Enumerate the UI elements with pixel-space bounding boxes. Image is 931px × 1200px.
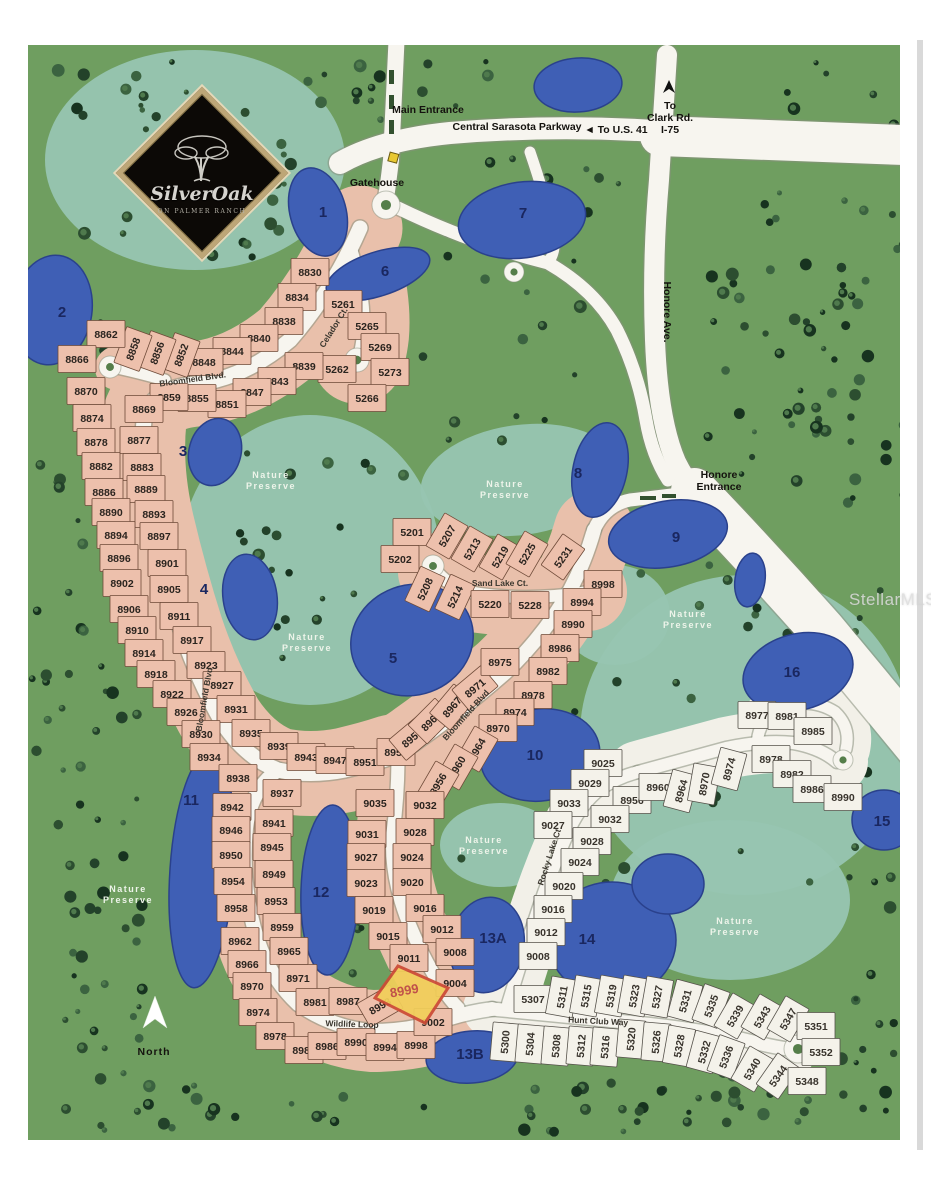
lot-8866: 8866 bbox=[58, 346, 96, 373]
lot-8862: 8862 bbox=[87, 321, 125, 348]
lot-9008: 9008 bbox=[519, 943, 557, 970]
tree-highlight bbox=[145, 1101, 150, 1106]
tree bbox=[244, 450, 250, 456]
lot-number: 8893 bbox=[142, 509, 166, 521]
tree-highlight bbox=[324, 459, 330, 465]
tree-highlight bbox=[821, 346, 824, 349]
oak-tree-icon bbox=[170, 131, 234, 183]
lot-8954: 8954 bbox=[214, 868, 252, 895]
lot-8965: 8965 bbox=[270, 938, 308, 965]
tree-highlight bbox=[806, 326, 812, 332]
lot-number: 8949 bbox=[262, 869, 286, 881]
lot-number: 8906 bbox=[117, 604, 141, 616]
tree-highlight bbox=[102, 1128, 105, 1131]
lot-8975: 8975 bbox=[481, 649, 519, 676]
tree bbox=[518, 1123, 530, 1135]
tree bbox=[634, 1118, 641, 1125]
gatehouse-icon bbox=[388, 152, 399, 163]
lot-number: 8901 bbox=[155, 558, 179, 570]
tree bbox=[240, 538, 248, 546]
tract-number-1: 1 bbox=[319, 204, 327, 221]
cul-de-sac-island bbox=[839, 756, 846, 763]
tree-highlight bbox=[244, 241, 249, 246]
lot-number: 5320 bbox=[625, 1027, 639, 1051]
tree-highlight bbox=[900, 242, 904, 246]
tree bbox=[132, 914, 145, 927]
tree-highlight bbox=[71, 909, 76, 914]
lot-8982: 8982 bbox=[529, 658, 567, 685]
tree-highlight bbox=[121, 1071, 124, 1074]
lot-8874: 8874 bbox=[73, 405, 111, 432]
map-label: Clark Rd. bbox=[647, 112, 693, 124]
lot-5304: 5304 bbox=[515, 1024, 545, 1064]
lot-number: 8848 bbox=[192, 357, 216, 369]
lot-number: 9015 bbox=[376, 931, 400, 943]
lot-number: 8986 bbox=[315, 1041, 339, 1053]
map-label: Central Sarasota Parkway bbox=[453, 121, 582, 133]
tree-highlight bbox=[621, 1129, 624, 1132]
lot-9023: 9023 bbox=[347, 870, 385, 897]
lot-number: 8878 bbox=[84, 437, 108, 449]
tree bbox=[158, 1118, 170, 1130]
tree bbox=[721, 366, 730, 375]
tree bbox=[743, 622, 753, 632]
cul-de-sac-island bbox=[429, 562, 437, 570]
tree bbox=[800, 258, 812, 270]
tree-highlight bbox=[145, 1082, 151, 1088]
lot-number: 8970 bbox=[486, 723, 510, 735]
nature-preserve-line1: Nature bbox=[288, 632, 326, 642]
tree bbox=[374, 70, 386, 82]
tree-highlight bbox=[350, 970, 354, 974]
lot-number: 8975 bbox=[488, 657, 512, 669]
tree bbox=[76, 950, 88, 962]
lot-number: 9016 bbox=[413, 903, 437, 915]
road bbox=[660, 136, 931, 146]
tree bbox=[315, 96, 327, 108]
tree bbox=[849, 389, 861, 401]
tree bbox=[518, 334, 529, 345]
lot-number: 8990 bbox=[344, 1037, 368, 1049]
tree-highlight bbox=[369, 85, 373, 89]
lot-8971: 8971 bbox=[279, 965, 317, 992]
tract-number-5: 5 bbox=[389, 650, 397, 667]
lot-8941: 8941 bbox=[255, 810, 293, 837]
tree-highlight bbox=[795, 405, 801, 411]
tree-highlight bbox=[59, 706, 62, 709]
scan-edge-artifact bbox=[917, 40, 923, 1150]
lot-number: 8870 bbox=[74, 386, 98, 398]
tree bbox=[899, 491, 907, 499]
lake bbox=[632, 854, 704, 914]
lot-number: 8896 bbox=[107, 553, 131, 565]
lot-number: 8917 bbox=[180, 635, 204, 647]
lot-8953: 8953 bbox=[257, 888, 295, 915]
tract-number-10: 10 bbox=[527, 747, 544, 764]
lot-number: 8934 bbox=[197, 752, 221, 764]
community-logo-content: SilverOak ON PALMER RANCH bbox=[146, 117, 258, 229]
tree-highlight bbox=[61, 768, 64, 771]
tree bbox=[54, 820, 64, 830]
tree-highlight bbox=[619, 1106, 623, 1110]
lot-number: 8990 bbox=[831, 792, 855, 804]
lot-5316: 5316 bbox=[590, 1027, 620, 1067]
tract-number-14: 14 bbox=[579, 931, 596, 948]
map-label: Entrance bbox=[697, 481, 742, 493]
lot-5351: 5351 bbox=[797, 1013, 835, 1040]
map-label: I-75 bbox=[661, 124, 679, 136]
tree bbox=[122, 924, 130, 932]
tree bbox=[890, 1019, 898, 1027]
tree bbox=[274, 623, 281, 630]
tree bbox=[106, 686, 119, 699]
lot-number: 5307 bbox=[521, 994, 545, 1006]
tree-highlight bbox=[872, 879, 875, 882]
tree-highlight bbox=[95, 817, 98, 820]
tree bbox=[889, 211, 896, 218]
tree bbox=[840, 282, 846, 288]
lot-9008: 9008 bbox=[436, 939, 474, 966]
tree bbox=[737, 1104, 744, 1111]
tree bbox=[612, 677, 621, 686]
tree-highlight bbox=[66, 590, 70, 594]
tree-highlight bbox=[400, 471, 405, 476]
tree bbox=[583, 166, 589, 172]
tree bbox=[75, 518, 80, 523]
tree bbox=[285, 569, 292, 576]
nature-preserve-line1: Nature bbox=[252, 470, 290, 480]
lot-number: 8834 bbox=[285, 292, 309, 304]
lot-number: 8941 bbox=[262, 818, 286, 830]
tract-number-8: 8 bbox=[574, 465, 582, 482]
nature-preserve-label: NaturePreserve bbox=[480, 479, 530, 500]
lot-number: 9008 bbox=[443, 947, 467, 959]
lot-9024: 9024 bbox=[393, 844, 431, 871]
map-label: Main Entrance bbox=[392, 104, 464, 116]
lot-number: 8974 bbox=[246, 1007, 270, 1019]
nature-preserve-label: NaturePreserve bbox=[103, 884, 153, 905]
tree-highlight bbox=[139, 985, 144, 990]
tract-number-12: 12 bbox=[313, 884, 330, 901]
cul-de-sac-island bbox=[106, 363, 114, 371]
lot-number: 5201 bbox=[400, 527, 424, 539]
lot-8889: 8889 bbox=[127, 476, 165, 503]
tree bbox=[706, 561, 714, 569]
lot-number: 8942 bbox=[220, 802, 244, 814]
lot-number: 8953 bbox=[264, 896, 288, 908]
lot-number: 8994 bbox=[570, 597, 594, 609]
tree bbox=[94, 906, 102, 914]
tree-highlight bbox=[67, 862, 72, 867]
tree bbox=[607, 1078, 616, 1087]
lot-number: 5273 bbox=[378, 367, 402, 379]
tract-number-15: 15 bbox=[874, 813, 891, 830]
lot-8902: 8902 bbox=[103, 570, 141, 597]
lot-number: 8943 bbox=[294, 752, 318, 764]
tree bbox=[904, 205, 915, 216]
tree bbox=[118, 851, 128, 861]
tree bbox=[272, 530, 282, 540]
tree bbox=[772, 215, 780, 223]
nature-preserve-label: NaturePreserve bbox=[246, 470, 296, 491]
tree bbox=[138, 103, 143, 108]
lot-number: 5304 bbox=[524, 1032, 538, 1056]
tree-highlight bbox=[834, 300, 840, 306]
tree-highlight bbox=[812, 423, 818, 429]
lot-number: 8954 bbox=[221, 876, 245, 888]
tree-highlight bbox=[331, 1118, 336, 1123]
tract-number-9: 9 bbox=[672, 529, 680, 546]
lot-number: 9019 bbox=[362, 905, 386, 917]
tree bbox=[847, 438, 854, 445]
tree bbox=[336, 523, 343, 530]
street-label: Sand Lake Ct. bbox=[472, 578, 528, 588]
lot-5262: 5262 bbox=[318, 356, 356, 383]
lot-8950: 8950 bbox=[212, 842, 250, 869]
lot-8949: 8949 bbox=[255, 861, 293, 888]
tree-highlight bbox=[121, 820, 124, 823]
lot-number: 8911 bbox=[168, 611, 191, 623]
lot-5202: 5202 bbox=[381, 546, 419, 573]
tree bbox=[134, 797, 139, 802]
tree bbox=[116, 712, 128, 724]
tree bbox=[241, 108, 250, 117]
lot-number: 8918 bbox=[144, 669, 168, 681]
cul-de-sac-island bbox=[793, 1044, 803, 1054]
lot-number: 9024 bbox=[568, 857, 592, 869]
nature-preserve-line2: Preserve bbox=[282, 643, 332, 653]
tree-highlight bbox=[184, 90, 187, 93]
tree-highlight bbox=[368, 98, 371, 101]
logo-subtitle: ON PALMER RANCH bbox=[158, 208, 247, 215]
lot-number: 8959 bbox=[270, 922, 294, 934]
lot-8905: 8905 bbox=[150, 576, 188, 603]
tree bbox=[353, 97, 360, 104]
lot-9028: 9028 bbox=[396, 819, 434, 846]
median-strip bbox=[662, 494, 676, 498]
cul-de-sac-island bbox=[510, 268, 517, 275]
lot-number: 9016 bbox=[541, 904, 565, 916]
tree bbox=[884, 901, 897, 914]
lot-number: 8882 bbox=[89, 461, 113, 473]
lot-8937: 8937 bbox=[263, 780, 301, 807]
tree-highlight bbox=[192, 1083, 195, 1086]
lot-5266: 5266 bbox=[348, 385, 386, 412]
lot-number: 8889 bbox=[134, 484, 158, 496]
lot-number: 5300 bbox=[499, 1030, 513, 1054]
lot-number: 8946 bbox=[219, 825, 243, 837]
nature-preserve-line2: Preserve bbox=[246, 481, 296, 491]
tree-highlight bbox=[868, 971, 873, 976]
lot-number: 5308 bbox=[550, 1034, 564, 1058]
tree bbox=[636, 569, 645, 578]
tree bbox=[789, 313, 801, 325]
median-strip bbox=[389, 70, 394, 84]
nature-preserve-line1: Nature bbox=[486, 479, 524, 489]
lot-8882: 8882 bbox=[82, 453, 120, 480]
tree-highlight bbox=[798, 388, 801, 391]
tree-highlight bbox=[814, 60, 817, 63]
tree-highlight bbox=[80, 229, 86, 235]
tree bbox=[893, 245, 901, 253]
tree bbox=[837, 263, 847, 273]
lot-8970: 8970 bbox=[233, 973, 271, 1000]
lot-number: 8978 bbox=[263, 1031, 287, 1043]
lot-number: 8987 bbox=[336, 996, 360, 1008]
tree bbox=[322, 72, 328, 78]
tree bbox=[806, 878, 813, 885]
tract-number-16: 16 bbox=[784, 664, 801, 681]
scanned-plat-map-page: 8830883488388840884488488852885688588862… bbox=[0, 0, 931, 1200]
tree bbox=[784, 89, 791, 96]
map-label: Honore bbox=[701, 469, 738, 481]
tree-highlight bbox=[852, 844, 856, 848]
lot-number: 8869 bbox=[132, 404, 156, 416]
tree-highlight bbox=[446, 437, 449, 440]
lot-8974: 8974 bbox=[239, 999, 277, 1026]
tree-highlight bbox=[79, 540, 84, 545]
tree bbox=[249, 253, 256, 260]
map-label: North bbox=[138, 1046, 171, 1058]
tree bbox=[85, 903, 96, 914]
tree-highlight bbox=[34, 608, 38, 612]
tree bbox=[788, 421, 795, 428]
lot-number: 8931 bbox=[224, 704, 248, 716]
tree-highlight bbox=[793, 477, 799, 483]
tree bbox=[281, 615, 290, 624]
tree-highlight bbox=[576, 302, 582, 308]
tree bbox=[859, 1046, 866, 1053]
tree bbox=[80, 984, 90, 994]
tree bbox=[883, 1108, 889, 1114]
lot-number: 5312 bbox=[575, 1034, 589, 1058]
tree bbox=[749, 454, 755, 460]
tree bbox=[839, 1090, 847, 1098]
tree-highlight bbox=[378, 117, 381, 120]
tree-highlight bbox=[93, 728, 97, 732]
tree-highlight bbox=[137, 1005, 140, 1008]
lot-8834: 8834 bbox=[278, 284, 316, 311]
tree-highlight bbox=[696, 602, 701, 607]
tree-highlight bbox=[63, 1105, 68, 1110]
tree bbox=[728, 1087, 740, 1099]
lot-number: 5352 bbox=[809, 1047, 833, 1059]
lot-8878: 8878 bbox=[77, 429, 115, 456]
lot-number: 5265 bbox=[355, 321, 379, 333]
tree-highlight bbox=[451, 418, 457, 424]
tree bbox=[823, 71, 829, 77]
tree-highlight bbox=[854, 1060, 857, 1063]
tree-highlight bbox=[532, 1086, 537, 1091]
tree-highlight bbox=[77, 763, 82, 768]
nature-preserve-line2: Preserve bbox=[710, 927, 760, 937]
tree bbox=[849, 473, 861, 485]
lot-8896: 8896 bbox=[100, 545, 138, 572]
lot-number: 9029 bbox=[578, 778, 602, 790]
nature-preserve-label: NaturePreserve bbox=[710, 916, 760, 937]
lot-number: 8910 bbox=[125, 625, 149, 637]
lot-8897: 8897 bbox=[140, 523, 178, 550]
lot-number: 8866 bbox=[65, 354, 89, 366]
tree bbox=[899, 241, 908, 250]
tree bbox=[359, 925, 365, 931]
tree-highlight bbox=[876, 1021, 880, 1025]
lot-number: 8855 bbox=[185, 393, 209, 405]
tree bbox=[847, 413, 854, 420]
lot-number: 5202 bbox=[388, 554, 412, 566]
lot-number: 8874 bbox=[80, 413, 104, 425]
lot-number: 8971 bbox=[286, 973, 310, 985]
lot-number: 5326 bbox=[650, 1030, 664, 1054]
tree-highlight bbox=[539, 322, 544, 327]
tree-highlight bbox=[484, 72, 490, 78]
lot-9020: 9020 bbox=[393, 869, 431, 896]
tree-highlight bbox=[102, 1046, 105, 1049]
tree-highlight bbox=[813, 404, 818, 409]
tree bbox=[236, 529, 244, 537]
lot-8931: 8931 bbox=[217, 696, 255, 723]
tree bbox=[130, 1013, 137, 1020]
tree-highlight bbox=[724, 577, 729, 582]
lot-number: 9025 bbox=[591, 758, 615, 770]
lot-number: 5266 bbox=[355, 393, 379, 405]
tree-highlight bbox=[498, 437, 503, 442]
tree bbox=[862, 277, 870, 285]
tree-highlight bbox=[510, 156, 513, 159]
tree-highlight bbox=[313, 1113, 319, 1119]
tree bbox=[95, 1073, 107, 1085]
tree-highlight bbox=[528, 1113, 532, 1117]
tree bbox=[729, 280, 737, 288]
lot-8830: 8830 bbox=[291, 259, 329, 286]
tree bbox=[734, 408, 745, 419]
nature-preserve-line1: Nature bbox=[465, 835, 503, 845]
tree bbox=[871, 1068, 877, 1074]
tree bbox=[850, 495, 856, 501]
tree bbox=[846, 874, 852, 880]
tree bbox=[443, 252, 452, 261]
tree bbox=[762, 330, 768, 336]
nature-preserve-label: NaturePreserve bbox=[459, 835, 509, 856]
tree bbox=[657, 1086, 666, 1095]
tree-highlight bbox=[739, 472, 742, 475]
tree-highlight bbox=[790, 105, 796, 111]
tree bbox=[726, 268, 739, 281]
tree bbox=[879, 1086, 892, 1099]
tree bbox=[140, 107, 146, 113]
tree bbox=[282, 182, 287, 187]
tree-highlight bbox=[777, 191, 780, 194]
tree-highlight bbox=[170, 60, 173, 63]
lot-number: 8982 bbox=[536, 666, 560, 678]
lot-number: 8894 bbox=[104, 530, 128, 542]
tree bbox=[78, 111, 87, 120]
tree-highlight bbox=[313, 616, 318, 621]
tree bbox=[800, 1107, 809, 1116]
lot-number: 8977 bbox=[745, 710, 769, 722]
lot-9032: 9032 bbox=[406, 792, 444, 819]
tree bbox=[285, 158, 297, 170]
tract-number-13B: 13B bbox=[456, 1046, 484, 1063]
tree-highlight bbox=[140, 93, 145, 98]
tree-highlight bbox=[616, 181, 619, 184]
tree bbox=[262, 526, 271, 535]
tree bbox=[841, 321, 850, 330]
lot-number: 9031 bbox=[355, 829, 379, 841]
tract-number-4: 4 bbox=[200, 581, 209, 598]
tree bbox=[281, 151, 287, 157]
lot-9024: 9024 bbox=[561, 849, 599, 876]
